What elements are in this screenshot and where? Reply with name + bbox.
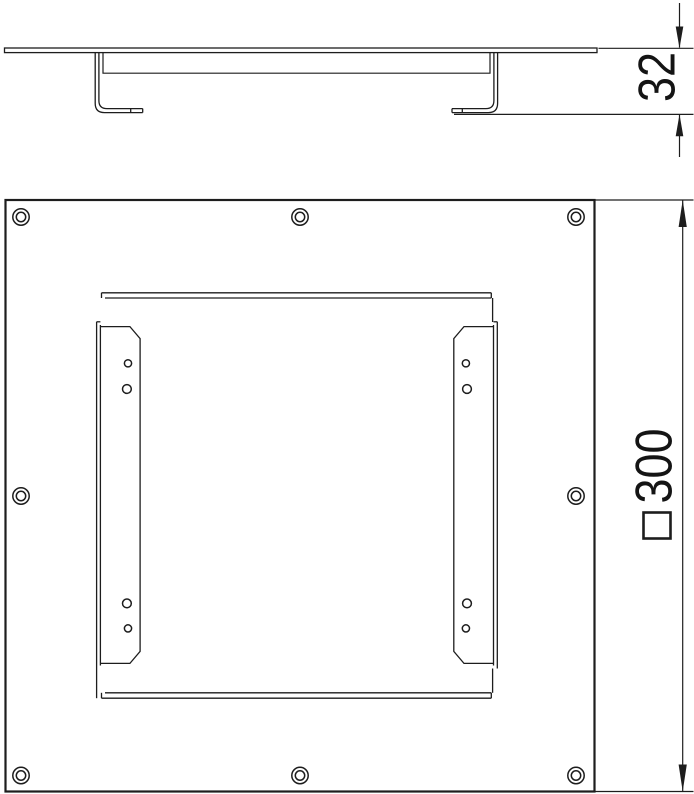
- rail-hole: [124, 625, 131, 632]
- rail-hole: [123, 385, 132, 394]
- rail-hole: [462, 360, 469, 367]
- screw-holes: [13, 209, 584, 784]
- right-bracket: [452, 53, 498, 113]
- left-rail: [97, 322, 141, 669]
- rail-hole: [124, 360, 131, 367]
- side-view: [5, 48, 598, 113]
- screw-hole-bottom-center: [292, 767, 308, 783]
- dimension-height-value: 32: [629, 52, 687, 102]
- right-rail-body: [454, 327, 494, 664]
- plan-view: [6, 200, 694, 792]
- technical-drawing: 32: [0, 0, 694, 794]
- square-symbol-icon: [644, 513, 671, 539]
- arrowhead-down-icon: [676, 27, 684, 49]
- plate-section: [5, 48, 598, 53]
- right-rail-holes: [462, 360, 471, 632]
- screw-hole-middle-right: [568, 488, 584, 504]
- dimension-width-300: 300: [626, 200, 687, 792]
- left-bracket: [95, 53, 143, 113]
- left-bracket-outer-line: [95, 53, 143, 113]
- right-bracket-outer-line: [452, 53, 498, 113]
- arrowhead-up-icon: [676, 114, 684, 136]
- rail-hole: [123, 599, 132, 608]
- left-bracket-inner-line: [99, 53, 143, 109]
- screw-hole-top-right: [568, 209, 584, 225]
- screw-hole-bottom-left: [13, 767, 29, 783]
- recessed-panel-section: [103, 53, 490, 74]
- right-rail: [454, 322, 498, 669]
- rail-hole: [463, 385, 472, 394]
- screw-hole-top-center: [292, 209, 308, 225]
- panel-bottom-edge: [97, 669, 493, 699]
- left-rail-holes: [123, 360, 132, 632]
- screw-hole-bottom-right: [568, 767, 584, 783]
- drawing-canvas: 32: [0, 0, 694, 794]
- arrowhead-down-icon: [679, 765, 687, 792]
- left-rail-body: [100, 327, 140, 664]
- arrowhead-up-icon: [679, 200, 687, 227]
- plate-outline: [6, 200, 595, 792]
- screw-hole-top-left: [13, 209, 29, 225]
- rail-hole: [462, 625, 469, 632]
- dimension-width-value: 300: [626, 428, 684, 503]
- right-bracket-inner-line: [452, 53, 494, 109]
- screw-hole-middle-left: [13, 488, 29, 504]
- panel-top-edge: [102, 293, 493, 322]
- rail-hole: [463, 599, 472, 608]
- dimension-height-32: 32: [454, 3, 694, 157]
